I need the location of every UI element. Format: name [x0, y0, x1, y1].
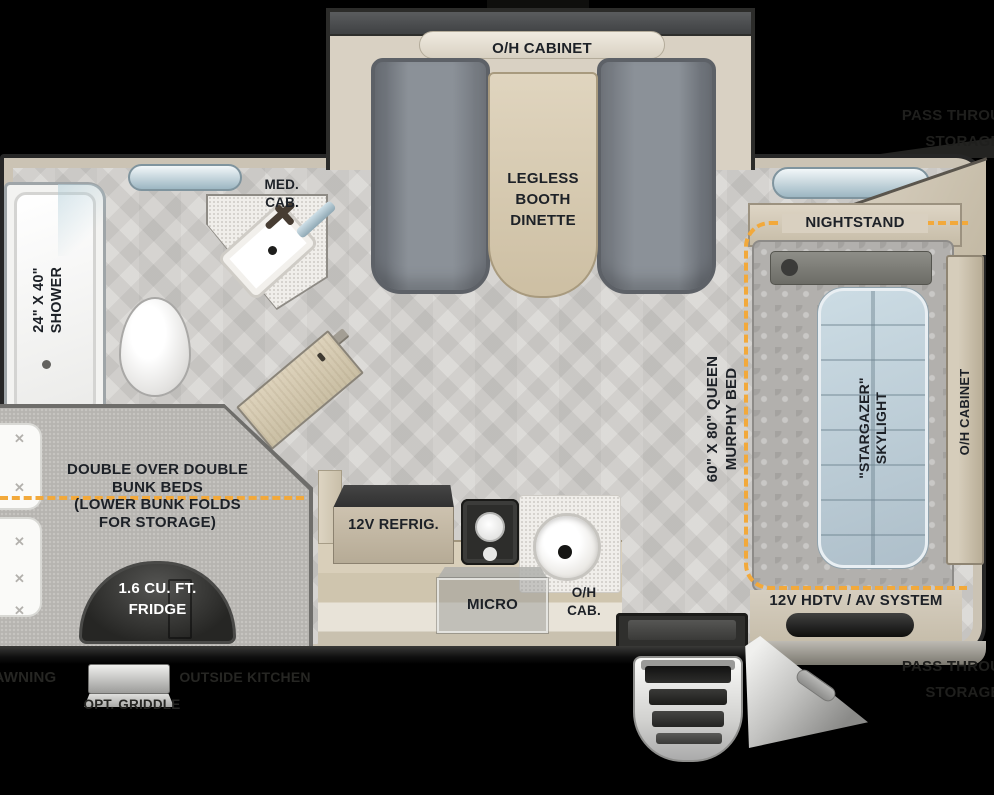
stitch-mark: ✕: [14, 431, 25, 447]
hdtv-av-label: 12V HDTV / AV SYSTEM: [748, 592, 964, 611]
exterior-griddle-shelf: [88, 664, 170, 694]
murphy-bed-label: 60" X 80" QUEEN MURPHY BED: [698, 319, 746, 519]
stitch-mark: ✕: [14, 603, 25, 619]
stitch-mark: ✕: [14, 480, 25, 496]
refrigerator-top: [333, 485, 454, 508]
nightstand-label: NIGHTSTAND: [782, 214, 928, 233]
booth-seat-right: [597, 58, 716, 294]
booth-seat-left: [371, 58, 490, 294]
shower-label: 24" X 40" SHOWER: [26, 220, 70, 380]
door-keyhole: [317, 352, 327, 362]
entry-door-panel: [628, 620, 736, 640]
oh-cabinet-top-label: O/H CABINET: [419, 40, 665, 59]
stitch-mark: ✕: [14, 571, 25, 587]
bedroom-wall-storage-door: [786, 613, 914, 637]
med-cab-label: MED. CAB.: [235, 176, 299, 211]
pass-through-storage-top-label: PASS THROUGH STORAGE: [878, 103, 994, 156]
floorplan-scene: O/H CABINET LEGLESS BOOTH DINETTE NIGHTS…: [0, 0, 994, 795]
pass-through-storage-bottom-label: PASS THROUGH STORAGE: [878, 654, 994, 707]
bathroom-sink-drain: [268, 246, 277, 255]
step-tread: [645, 666, 731, 683]
refrig-label: 12V REFRIG.: [333, 516, 454, 534]
bunk-pillow-bottom: [0, 517, 42, 617]
cooktop: [461, 499, 519, 565]
step-tread: [652, 711, 724, 727]
kitchen-faucet: [558, 545, 572, 559]
fridge-label: 1.6 CU. FT. FRIDGE: [79, 578, 236, 620]
oh-cab-kitchen-label: O/H CAB.: [552, 584, 616, 619]
stitch-mark: ✕: [14, 534, 25, 550]
griddle-label: OPT. GRIDDLE: [76, 697, 188, 714]
burner-large: [475, 512, 505, 542]
bathroom-window: [128, 164, 242, 191]
step-tread: [649, 689, 727, 705]
awning-label: AWNING: [0, 669, 68, 688]
oh-cabinet-right-label: O/H CABINET: [951, 348, 979, 476]
dinette-label: LEGLESS BOOTH DINETTE: [488, 168, 598, 231]
burner-small: [483, 547, 497, 561]
outside-kitchen-label: OUTSIDE KITCHEN: [172, 669, 318, 687]
micro-label: MICRO: [437, 596, 548, 615]
bunk-beds-label: DOUBLE OVER DOUBLE BUNK BEDS (LOWER BUNK…: [30, 461, 285, 532]
skylight-label: "STARGAZER" SKYLIGHT: [851, 323, 895, 533]
step-tread: [656, 733, 722, 744]
shower-drain: [42, 360, 51, 369]
